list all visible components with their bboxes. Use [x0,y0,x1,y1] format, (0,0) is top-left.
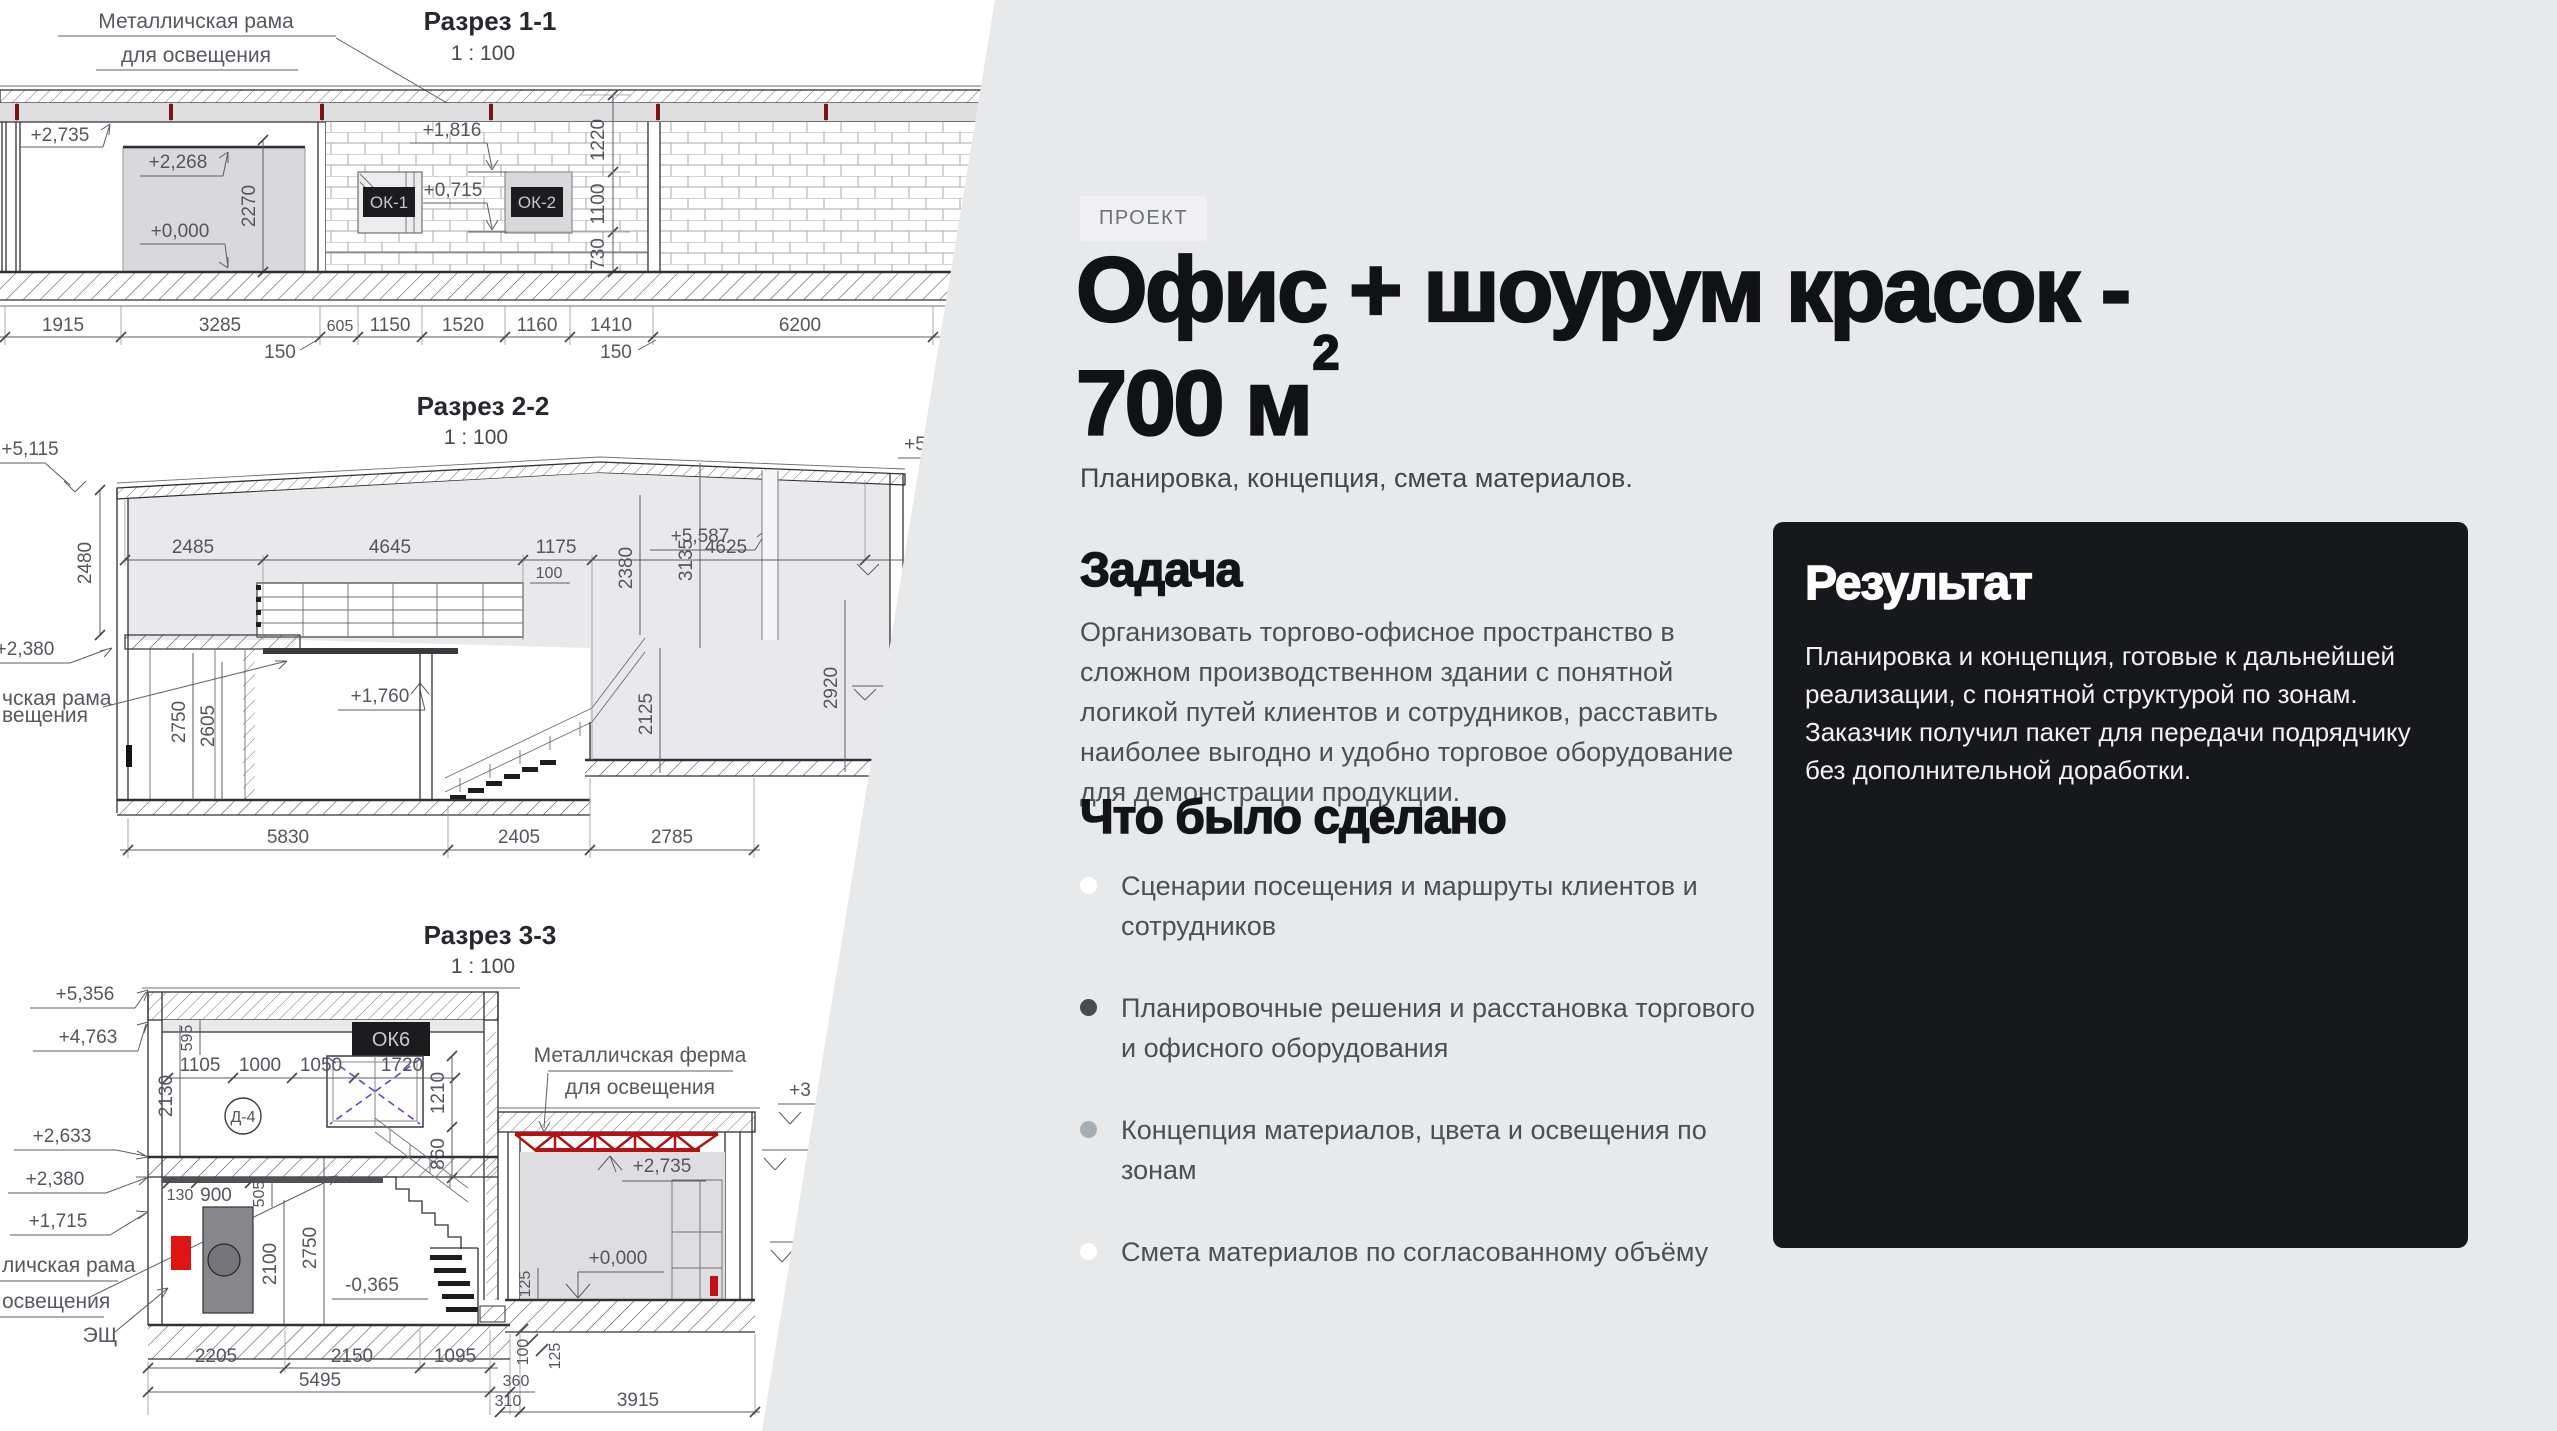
window-label: ОК6 [372,1029,410,1051]
note-line: для освещения [121,44,271,67]
list-item: Планировочные решения и расстановка торг… [1080,988,1780,1068]
dim-label: 2405 [498,827,540,848]
level-label: +2,633 [33,1126,92,1147]
dim-label: 6200 [779,315,821,336]
level-label: +1,760 [351,686,410,707]
dim-label: 4645 [369,537,411,558]
note-line: Металличская рама [98,10,294,33]
dim-label: 2150 [331,1346,373,1367]
dim-label: 1095 [434,1346,476,1367]
door [203,1207,253,1313]
level-label: +1,715 [29,1211,88,1232]
dim-label: 2380 [616,547,637,589]
list-item-text: Концепция материалов, цвета и освещения … [1121,1110,1771,1190]
page-title: Офис + шоурум красок -700 м2 [1076,242,2456,453]
list-item: Сценарии посещения и маршруты клиентов и… [1080,866,1780,946]
dim-label: 125 [547,1343,564,1370]
title-line-1: Офис + шоурум красок - [1076,239,2129,341]
window-ok6: ОК6 [352,1022,430,1056]
title-line-2: 700 м [1076,353,1311,455]
section-scale: 1 : 100 [451,42,515,65]
section-scale: 1 : 100 [444,426,508,449]
task-heading: Задача [1080,543,1241,598]
dim-label: 1720 [381,1055,423,1076]
list-bullet [1080,877,1097,894]
section-1-1: Разрез 1-1 1 : 100 Металличская рама для… [0,6,1005,363]
dim-label: 2750 [169,701,190,743]
level-marks: +5,356 +4,763 +2,633 +2,380 +1,715 [8,984,148,1235]
level-label: +5,356 [56,984,115,1005]
dim-label: 505 [251,1181,268,1208]
dim-label: 100 [515,1339,532,1366]
dimension-chain: 1915 3285 605 1150 1520 1160 1410 6200 1… [0,306,940,363]
list-item: Смета материалов по согласованному объём… [1080,1232,1780,1272]
project-case-page: { "project": { "badge": "ПРОЕКТ", "title… [0,0,2557,1431]
dim-label: 100 [536,565,563,582]
dim-label: 2605 [198,705,219,747]
dim-label: 2125 [636,693,657,735]
level-label: +2,735 [633,1156,692,1177]
list-item-text: Планировочные решения и расстановка торг… [1121,988,1771,1068]
dim-label: 1000 [239,1055,281,1076]
dim-label: 900 [200,1185,232,1206]
dim-label: 1220 [588,119,609,161]
dim-label: 3915 [617,1390,659,1411]
dim-label: 3285 [199,315,241,336]
dim-label: 2130 [156,1075,177,1117]
task-body: Организовать торгово-офисное пространств… [1080,612,1752,812]
level-label: +3 [789,1080,811,1101]
architectural-sections-drawing: Разрез 1-1 1 : 100 Металличская рама для… [0,0,1010,1431]
note-cut: вещения [2,704,88,727]
dim-label: 310 [495,1393,522,1410]
level-label: +1,816 [423,120,482,141]
dim-label: 730 [588,238,609,270]
red-truss [515,1134,718,1150]
dim-label: 2100 [260,1243,281,1285]
dim-label: 1050 [300,1055,342,1076]
level-label: +2,735 [31,125,90,146]
dim-label: 150 [264,342,296,363]
dim-label: 2785 [651,827,693,848]
list-bullet [1080,1121,1097,1138]
done-list: Сценарии посещения и маршруты клиентов и… [1080,866,1780,1314]
note-cut: освещения [2,1290,110,1313]
level-label: +0,715 [424,180,483,201]
section-title: Разрез 3-3 [424,920,557,950]
dim-label: 125 [517,1271,534,1298]
dim-label: 1915 [42,315,84,336]
project-subtitle: Планировка, концепция, смета материалов. [1080,463,1633,494]
dim-label: 130 [167,1187,194,1204]
result-card: Результат Планировка и концепция, готовы… [1773,522,2468,1248]
door-tag: Д-4 [225,1098,261,1134]
list-bullet [1080,1243,1097,1260]
dim-label: 1105 [180,1055,221,1076]
dim-label: 1210 [428,1072,449,1114]
note-esh: ЭЩ [83,1324,118,1347]
result-heading: Результат [1805,556,2436,611]
electrical-panel [171,1236,191,1270]
note-line: Металличская ферма [534,1044,747,1067]
dim-label: 2480 [75,542,96,584]
done-heading: Что было сделано [1080,790,1506,845]
dimension-chain: 5830 2405 2785 [120,778,760,858]
level-label: +0,000 [589,1248,648,1269]
dim-label: 2750 [300,1227,321,1269]
dim-label: 4625 [705,537,747,558]
dim-label: 2270 [239,185,260,227]
list-item-text: Сценарии посещения и маршруты клиентов и… [1121,866,1771,946]
truss-block [480,1108,760,1332]
dim-label: 3135 [676,539,697,581]
dim-label: 2485 [172,537,214,558]
result-body: Планировка и концепция, готовые к дальне… [1805,637,2445,789]
tag-label: Д-4 [230,1109,255,1126]
note-cut: личская рама [2,1254,136,1277]
window-label: ОК-1 [370,193,408,212]
level-label: +5,115 [1,439,58,460]
section-scale: 1 : 100 [451,955,515,978]
list-item: Концепция материалов, цвета и освещения … [1080,1110,1780,1190]
dim-label: 1160 [517,315,558,336]
level-label: +5 [904,434,926,455]
section-2-2: Разрез 2-2 1 : 100 +5,115 +5,587 +2,380 … [0,391,955,858]
section-title: Разрез 2-2 [417,391,550,421]
dim-label: 2205 [195,1346,237,1367]
note-line: для освещения [565,1076,715,1099]
list-item-text: Смета материалов по согласованному объём… [1121,1232,1771,1272]
dim-label: 2920 [821,667,842,709]
dim-label: 605 [327,318,354,335]
dim-label: 360 [503,1373,530,1390]
dim-label: 1410 [590,315,632,336]
level-label: +2,268 [149,152,208,173]
dim-label: 5495 [299,1370,341,1391]
title-superscript: 2 [1313,327,1337,380]
dim-label: 5830 [267,827,309,848]
level-label: +2,380 [0,639,54,660]
level-label: -0,365 [345,1275,399,1296]
window-label: ОК-2 [518,193,556,212]
section-title: Разрез 1-1 [424,6,557,36]
list-bullet [1080,999,1097,1016]
dim-label: 1100 [588,184,609,225]
level-label: +0,000 [151,221,210,242]
drawing-sheet: Разрез 1-1 1 : 100 Металличская рама для… [0,0,1010,1431]
dim-label: 1150 [370,315,411,336]
dim-label: 1175 [536,537,577,558]
dim-label: 150 [600,342,632,363]
window-ok1: ОК-1 [358,172,422,233]
level-label: +4,763 [59,1027,118,1048]
level-label: +2,380 [26,1169,85,1190]
project-badge: ПРОЕКТ [1080,196,1207,241]
dim-label: 1520 [442,315,484,336]
section-3-3: Разрез 3-3 1 : 100 +5,356 +4,763 +2,633 … [0,920,830,1417]
dim-label: 595 [179,1025,196,1052]
window-ok2: ОК-2 [505,172,572,233]
